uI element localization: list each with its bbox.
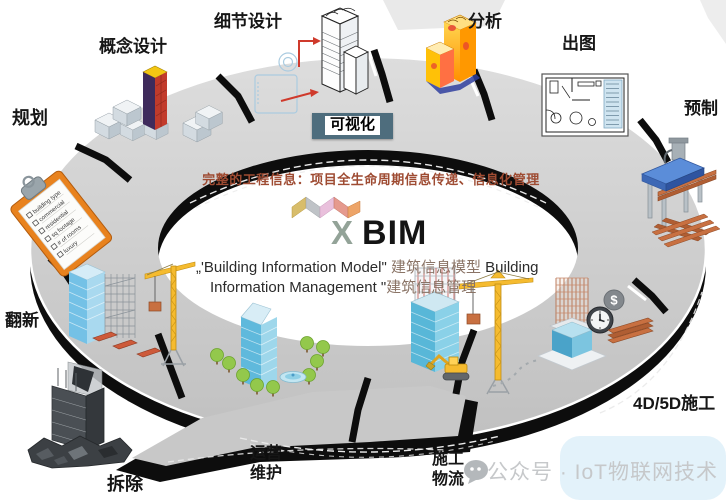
label-concept-design: 概念设计 [99, 32, 167, 57]
wechat-icon [464, 460, 488, 484]
brand-xbim: XBIM [331, 214, 427, 253]
label-construction-logistics: 施工 物流 [432, 450, 464, 489]
label-visualization: 可视化 [325, 116, 380, 135]
background-wedges [383, 0, 726, 44]
drawing-output-illustration [542, 74, 628, 136]
label-drawing-output: 出图 [562, 29, 596, 54]
brand-bim: BIM [362, 214, 427, 252]
label-logistics-line1: 施工 [432, 450, 464, 470]
label-renovation: 翻新 [5, 306, 39, 331]
clock-icon [587, 307, 613, 333]
label-operation-maintenance: 运营 维护 [250, 444, 282, 483]
label-prefabrication: 预制 [684, 94, 718, 119]
bim-lifecycle-diagram: building type commercial residential sq … [0, 0, 726, 500]
label-detail-design: 细节设计 [214, 7, 282, 32]
label-operation-line1: 运营 [250, 444, 282, 464]
label-logistics-line2: 物流 [432, 470, 464, 490]
svg-text:$: $ [610, 293, 618, 308]
fountain [280, 372, 306, 383]
dollar-icon: $ [604, 290, 624, 310]
label-demolition: 拆除 [107, 470, 143, 496]
description-line1: „'Building Information Model" 建筑信息模型 Bui… [196, 258, 539, 278]
label-planning: 规划 [12, 104, 48, 130]
label-analysis: 分析 [468, 7, 502, 32]
brand-x: X [331, 214, 353, 251]
visualization-badge: 可视化 [312, 113, 393, 139]
center-description: „'Building Information Model" 建筑信息模型 Bui… [196, 258, 539, 299]
center-info-line: 完整的工程信息：项目全生命周期信息传递、信息化管理 [190, 169, 552, 188]
description-line2: Information Management "建筑信息管理 [210, 278, 539, 298]
watermark-text: 公众号 · IoT物联网技术 [487, 456, 718, 486]
label-construction-4d5d: 4D/5D施工 [633, 389, 715, 414]
label-operation-line2: 维护 [250, 464, 282, 484]
